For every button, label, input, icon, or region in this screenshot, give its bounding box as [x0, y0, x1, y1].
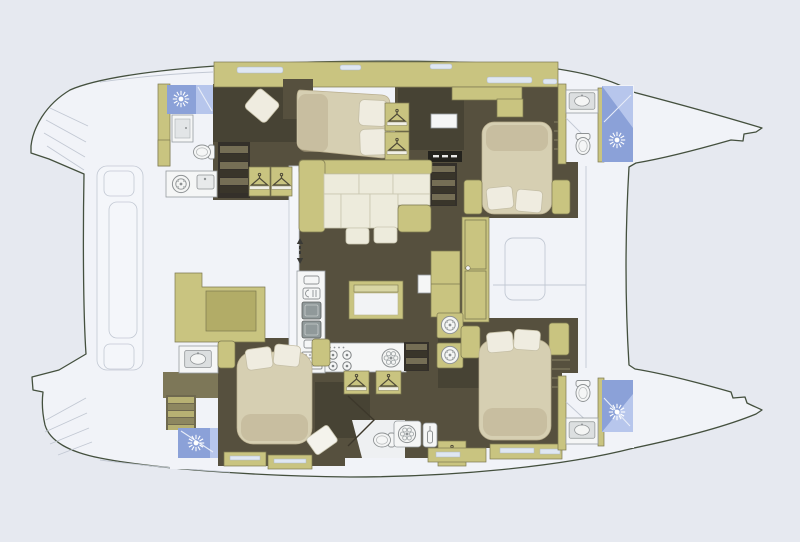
- window-slit: [543, 79, 557, 84]
- sofa-cushion: [324, 194, 341, 228]
- catamaran-deck-plan: [0, 0, 800, 542]
- sofa-cushion: [359, 174, 393, 194]
- window-slit: [430, 64, 452, 69]
- toilet-icon: [374, 433, 395, 447]
- washbasin-icon: [569, 93, 595, 110]
- wardrobe: [271, 167, 292, 196]
- bed-pillow: [358, 99, 387, 126]
- wardrobe: [249, 167, 270, 196]
- washing-machine-icon: [398, 425, 415, 442]
- cockpit-table: [206, 291, 256, 331]
- cabin-cabinet: [431, 114, 457, 128]
- bed-pillow: [513, 329, 540, 351]
- sofa-cushion: [393, 174, 430, 194]
- salon: [299, 160, 432, 244]
- nightstand: [549, 323, 569, 355]
- window-slit: [487, 77, 532, 83]
- nightstand: [218, 341, 235, 368]
- cockpit-sink: [197, 175, 214, 189]
- nightstand: [464, 180, 482, 214]
- nightstand: [312, 339, 330, 366]
- sofa-cushion: [398, 194, 430, 205]
- bed-pillow: [515, 189, 543, 213]
- door-knob: [466, 266, 470, 270]
- large-burner-icon: [382, 349, 400, 367]
- swim-platform: [97, 166, 143, 370]
- sofa-arm-left: [299, 160, 325, 232]
- nightstand: [552, 180, 570, 214]
- stairs-to-port-forward: [430, 163, 457, 206]
- ottoman: [374, 227, 397, 243]
- stbd-forward-head: [558, 373, 634, 450]
- bed-pillow: [486, 186, 514, 211]
- toilet-icon: [576, 134, 590, 155]
- toilet-icon: [194, 145, 215, 159]
- bed-pillow: [360, 129, 389, 156]
- sofa-arm-right: [398, 205, 431, 232]
- bed-pillow: [486, 331, 514, 353]
- stbd-aft-landing-floor: [163, 372, 218, 398]
- deck-plan-svg: [0, 0, 800, 542]
- sofa-chaise: [370, 194, 398, 228]
- stairs-to-stbd-aft: [166, 395, 196, 430]
- bed-pillow: [273, 344, 301, 368]
- galley-island: [349, 281, 403, 319]
- washing-machine-icon: [172, 175, 189, 192]
- stairs-to-port-aft: [218, 142, 250, 198]
- washbasin-icon: [569, 422, 595, 439]
- port-forward-head: [558, 84, 634, 164]
- sofa-cushion: [324, 174, 359, 194]
- head-threshold: [170, 458, 218, 469]
- forward-cabinet: [462, 217, 489, 322]
- washing-machine-icon: [441, 316, 458, 333]
- washbasin-icon: [185, 350, 212, 367]
- window-slit: [237, 67, 283, 73]
- ottoman: [346, 228, 369, 244]
- wardrobe: [385, 103, 409, 131]
- sofa-chaise: [341, 194, 370, 228]
- window-slit: [340, 65, 361, 70]
- washing-machine-icon: [441, 346, 458, 363]
- stairs-to-stbd-hull: [404, 342, 429, 371]
- wardrobe: [385, 132, 409, 160]
- bed-pillow: [245, 346, 274, 370]
- nightstand: [461, 326, 480, 358]
- toilet-icon: [576, 381, 590, 402]
